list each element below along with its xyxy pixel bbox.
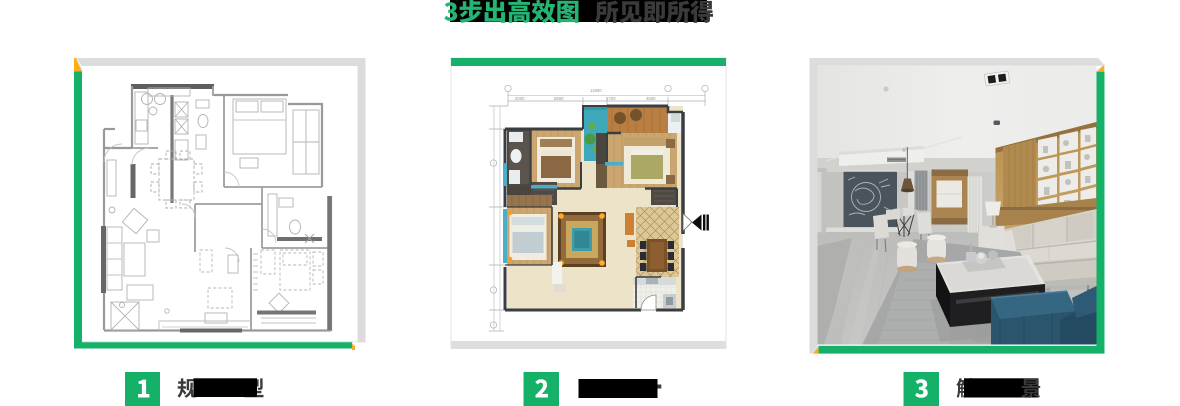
svg-text:5600: 5600: [554, 96, 564, 101]
svg-text:1700: 1700: [606, 96, 616, 101]
svg-text:4500: 4500: [646, 96, 656, 101]
svg-text:2000: 2000: [515, 96, 525, 101]
svg-text:11800: 11800: [590, 88, 602, 93]
